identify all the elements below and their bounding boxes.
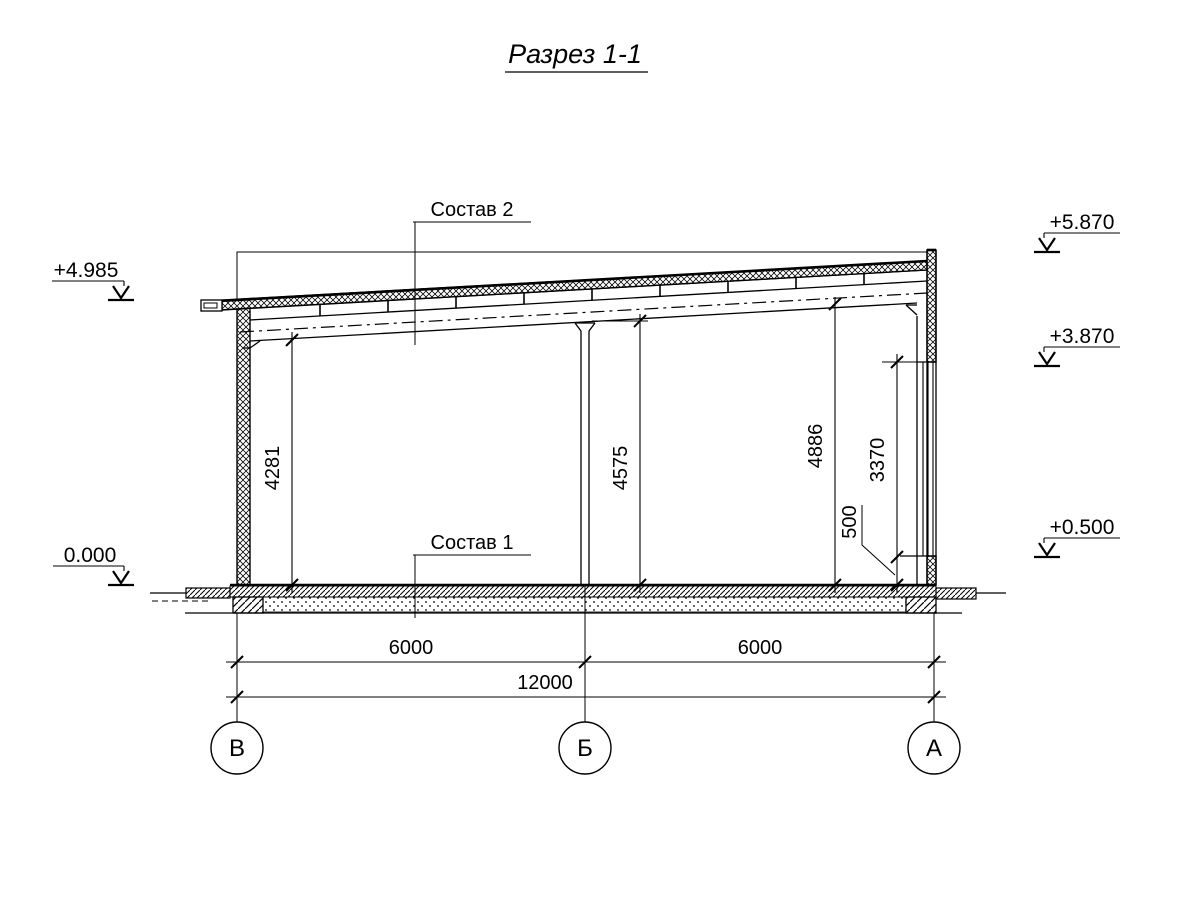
wall-right-parapet-hatch bbox=[927, 250, 936, 362]
wall-right bbox=[882, 250, 936, 585]
dim-sill-height: 500 bbox=[839, 505, 895, 575]
foundation-right bbox=[906, 597, 936, 613]
callout-floor-label: Состав 1 bbox=[431, 532, 514, 554]
roof-assembly bbox=[201, 252, 927, 348]
axis-bubble-v-label: В bbox=[229, 735, 245, 762]
dim-height-right-value: 4886 bbox=[805, 424, 827, 469]
wall-left bbox=[237, 308, 250, 585]
elevation-left-eave: +4.985 bbox=[52, 259, 134, 300]
dim-bay-right-value: 6000 bbox=[738, 637, 783, 659]
floor-assembly bbox=[150, 585, 1006, 613]
elevation-left-eave-value: +4.985 bbox=[54, 259, 119, 282]
foundation-left bbox=[233, 597, 263, 613]
axis-bubble-a: А bbox=[908, 722, 960, 774]
dim-height-left: 4281 bbox=[262, 332, 298, 593]
wall-right-base-hatch bbox=[927, 556, 936, 585]
elevation-right-window-head-value: +3.870 bbox=[1050, 325, 1115, 348]
wall-left-hatch bbox=[237, 308, 250, 585]
apron-left bbox=[186, 588, 230, 598]
callout-roof-label: Состав 2 bbox=[431, 199, 514, 221]
dim-bay-left-value: 6000 bbox=[389, 637, 434, 659]
axis-bubble-v: В bbox=[211, 722, 263, 774]
dim-height-left-value: 4281 bbox=[262, 446, 284, 491]
elevation-left-floor: 0.000 bbox=[53, 544, 134, 585]
apron-right bbox=[936, 588, 976, 599]
elevation-right-window-head: +3.870 bbox=[1034, 325, 1120, 366]
window-right bbox=[923, 362, 933, 556]
beam-bracket-right bbox=[906, 305, 917, 315]
roof-deck-bottom-line bbox=[201, 270, 927, 311]
roof-top-line bbox=[201, 261, 927, 302]
floor-screed-hatch bbox=[230, 586, 936, 597]
dim-height-center-value: 4575 bbox=[610, 446, 632, 491]
axis-bubble-b: Б bbox=[559, 722, 611, 774]
elevation-right-parapet-value: +5.870 bbox=[1050, 211, 1115, 234]
column-cap bbox=[575, 323, 595, 331]
dim-sill-height-value: 500 bbox=[839, 505, 861, 538]
drawing-title: Разрез 1-1 bbox=[508, 39, 642, 69]
dim-overall: 12000 bbox=[226, 672, 946, 703]
callout-roof-composition: Состав 2 bbox=[413, 199, 531, 345]
dim-height-right: 4886 bbox=[805, 297, 841, 593]
dim-window-height: 3370 bbox=[867, 354, 903, 593]
section-drawing-canvas: Разрез 1-1 bbox=[0, 0, 1200, 900]
beam-underside-line bbox=[250, 303, 917, 341]
elevation-left-floor-value: 0.000 bbox=[64, 544, 117, 567]
column-center bbox=[575, 323, 595, 585]
elevation-right-sill-value: +0.500 bbox=[1050, 516, 1115, 539]
axis-bubble-b-label: Б bbox=[577, 735, 593, 762]
axis-bubble-a-label: А bbox=[926, 735, 942, 762]
roof-deck-hatch bbox=[222, 261, 927, 310]
section-drawing-sheet: Разрез 1-1 bbox=[0, 0, 1200, 900]
elevation-right-parapet: +5.870 bbox=[1034, 211, 1120, 252]
dim-height-center: 4575 bbox=[592, 314, 648, 593]
dim-overall-value: 12000 bbox=[517, 672, 573, 694]
elevation-right-sill: +0.500 bbox=[1034, 516, 1120, 557]
dim-window-height-value: 3370 bbox=[867, 438, 889, 483]
dim-bays: 6000 6000 bbox=[226, 637, 946, 668]
